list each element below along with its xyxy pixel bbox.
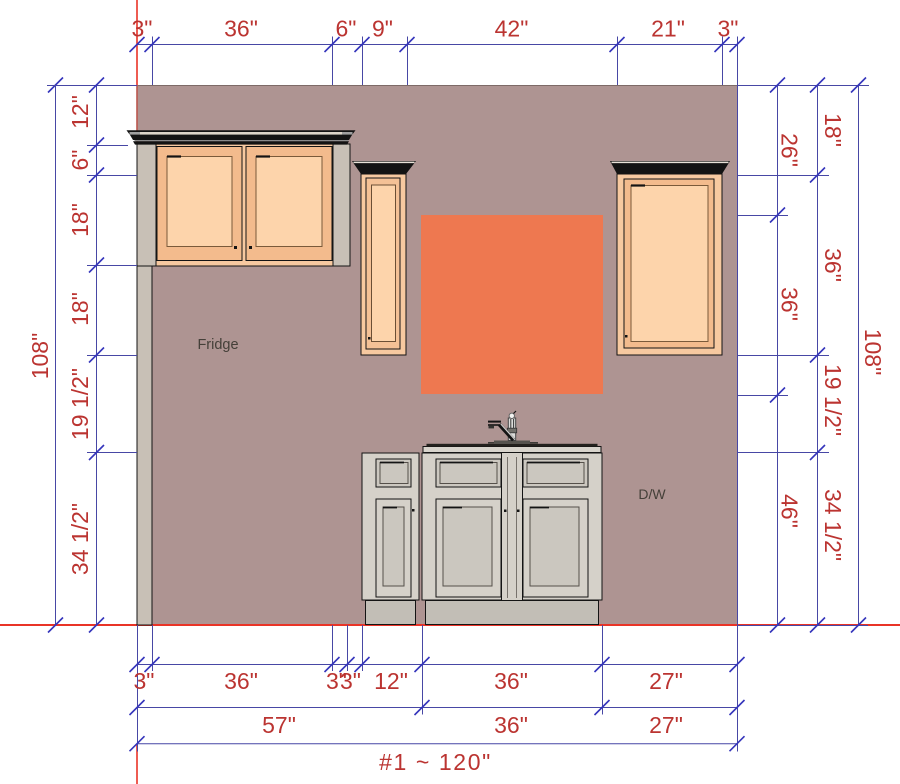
svg-text:42": 42": [495, 16, 529, 42]
svg-text:18": 18": [67, 292, 93, 326]
svg-text:12": 12": [374, 668, 408, 694]
svg-text:3": 3": [340, 668, 361, 694]
svg-text:108": 108": [27, 333, 53, 380]
svg-text:3": 3": [134, 668, 155, 694]
svg-text:36": 36": [820, 248, 846, 282]
svg-text:18": 18": [820, 113, 846, 147]
svg-text:Fridge: Fridge: [197, 337, 238, 353]
svg-text:36": 36": [224, 668, 258, 694]
svg-text:6": 6": [336, 16, 357, 42]
svg-text:57": 57": [262, 712, 296, 738]
svg-text:D/W: D/W: [638, 486, 666, 502]
svg-text:#1 ~ 120": #1 ~ 120": [379, 749, 492, 775]
svg-text:21": 21": [651, 16, 685, 42]
svg-text:3": 3": [718, 16, 739, 42]
svg-text:12": 12": [67, 95, 93, 129]
svg-text:36": 36": [777, 287, 803, 321]
svg-text:26": 26": [777, 133, 803, 167]
svg-text:34 1/2": 34 1/2": [67, 503, 93, 575]
svg-text:19 1/2": 19 1/2": [67, 368, 93, 440]
svg-text:36": 36": [224, 16, 258, 42]
svg-text:34 1/2": 34 1/2": [820, 489, 846, 561]
svg-text:18": 18": [67, 203, 93, 237]
svg-text:3": 3": [132, 16, 153, 42]
svg-text:46": 46": [777, 494, 803, 528]
svg-text:27": 27": [649, 712, 683, 738]
svg-text:27": 27": [649, 668, 683, 694]
svg-text:108": 108": [860, 329, 886, 376]
svg-text:36": 36": [494, 668, 528, 694]
svg-text:6": 6": [67, 150, 93, 171]
svg-text:19 1/2": 19 1/2": [820, 364, 846, 436]
svg-text:9": 9": [372, 16, 393, 42]
svg-text:36": 36": [494, 712, 528, 738]
